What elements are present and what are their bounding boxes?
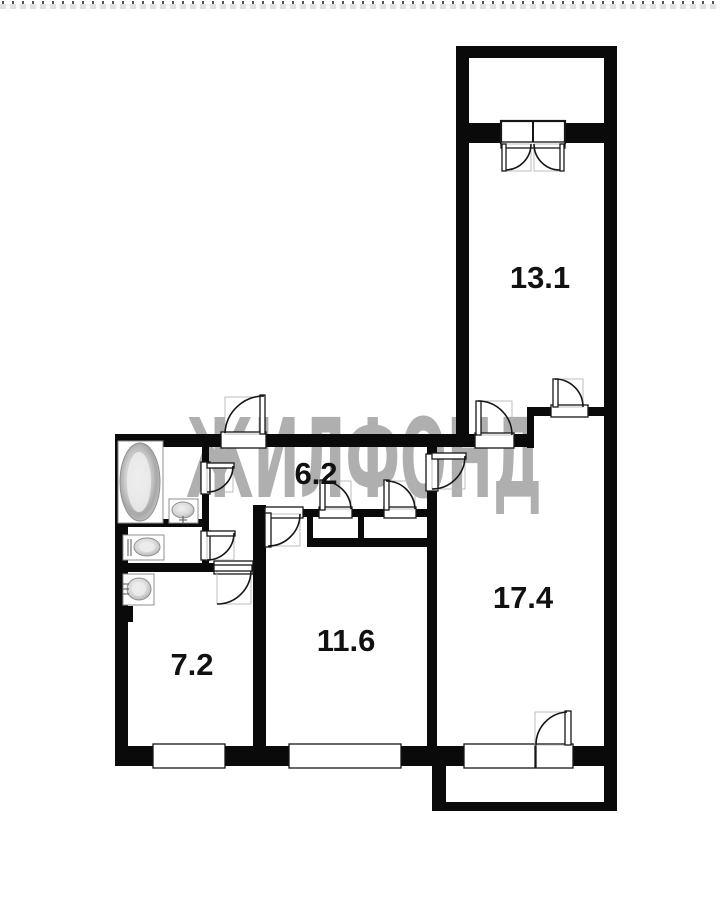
wall-top-main	[115, 434, 534, 447]
wall-balcony-left	[456, 46, 469, 133]
room131-door-leaf	[476, 401, 481, 435]
toilet-door-arc	[207, 533, 234, 560]
window-room116	[289, 744, 401, 768]
torn-edge-decoration	[0, 0, 720, 9]
nook-door-arc	[555, 379, 583, 407]
balcony-door-left-leaf	[502, 144, 506, 171]
room116-door-leaf	[265, 513, 271, 547]
wall-rooms-divider	[427, 447, 437, 753]
balcony-door-right-leaf	[560, 144, 564, 171]
room-label-6-2: 6.2	[294, 456, 337, 491]
balcony2-door-opening	[536, 744, 573, 768]
toilet-door-leaf	[207, 531, 235, 536]
floor-plan-drawing: ЖИЛФОНД 13.16.217.411.67.2	[0, 0, 720, 905]
entry-door-leaf	[260, 395, 265, 434]
window-room72	[153, 744, 225, 768]
balcony2-door-arc	[536, 712, 567, 745]
wall-nook-connector	[527, 407, 534, 448]
room-label-13-1: 13.1	[510, 260, 570, 295]
floor-plan-page: ЖИЛФОНД 13.16.217.411.67.2	[0, 0, 720, 905]
room-label-17-4: 17.4	[493, 580, 554, 615]
toilet-basin	[139, 542, 155, 552]
wall-room131-left	[456, 121, 469, 447]
room-label-11-6: 11.6	[317, 623, 376, 658]
wall-room72-right	[253, 505, 266, 753]
wall-room116-top	[307, 538, 437, 547]
bathroom-door-leaf	[207, 463, 234, 468]
wall-outer-right	[604, 46, 617, 811]
balcony-window-sill	[501, 142, 565, 148]
watermark-text: ЖИЛФОНД	[186, 395, 542, 523]
room72-door-leaf	[214, 565, 252, 571]
window-room174	[464, 744, 535, 768]
bathtub-basin	[127, 452, 151, 512]
wall-wall-stub	[115, 606, 133, 622]
wall-balcony-top	[456, 46, 617, 58]
wall-balcony2-bottom	[432, 802, 617, 811]
balcony2-door-leaf	[565, 711, 571, 745]
bathroom-sink	[172, 502, 194, 518]
room72-door-arc	[217, 571, 251, 604]
nook-door-leaf	[553, 379, 558, 407]
closet-b-door-leaf	[384, 480, 389, 510]
washbasin-basin	[132, 582, 146, 596]
room174-door-leaf	[432, 453, 466, 459]
room-label-7-2: 7.2	[170, 647, 213, 682]
